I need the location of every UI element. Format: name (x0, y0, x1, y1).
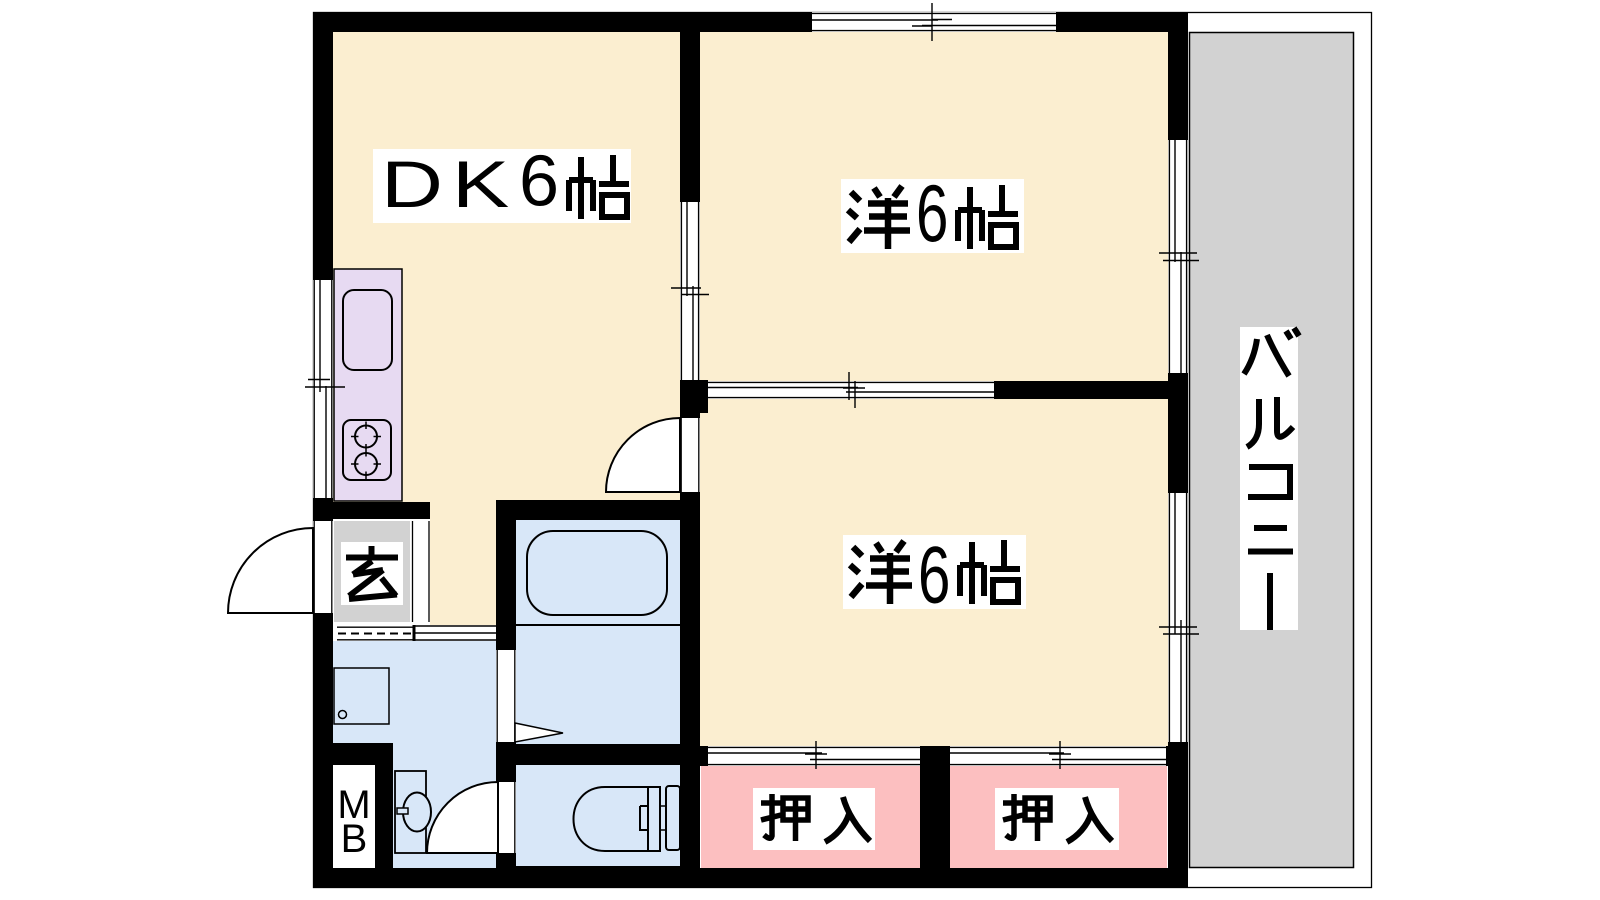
svg-text:6: 6 (916, 168, 948, 259)
svg-text:6: 6 (918, 529, 950, 620)
svg-text:B: B (341, 817, 368, 861)
svg-text:K: K (452, 148, 509, 221)
svg-text:6: 6 (519, 142, 559, 222)
svg-text:D: D (381, 148, 443, 221)
